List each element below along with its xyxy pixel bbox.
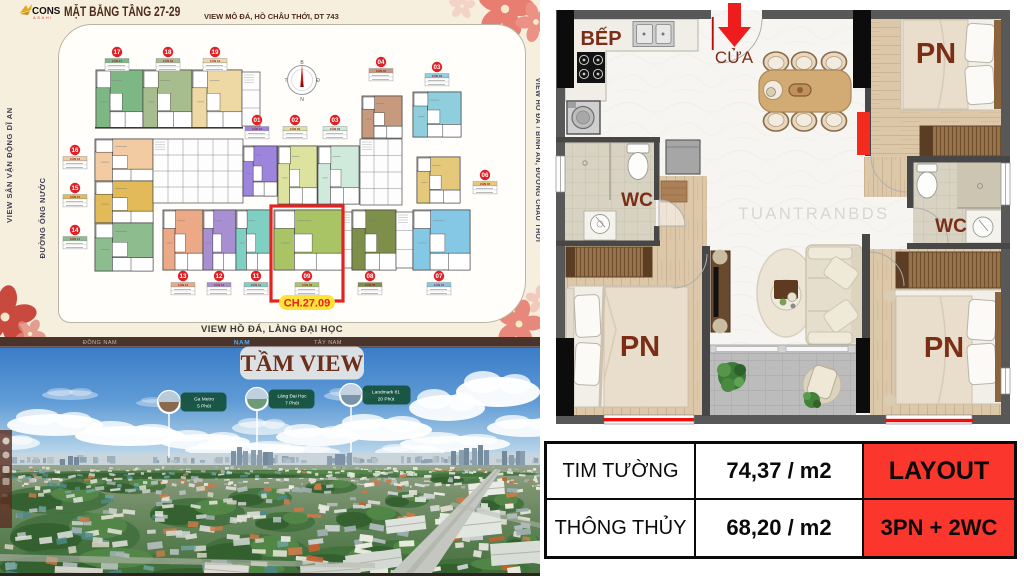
svg-text:PN: PN: [620, 331, 660, 363]
svg-text:WC: WC: [621, 190, 653, 211]
svg-text:02: 02: [292, 117, 299, 124]
svg-text:CĂN 18: CĂN 18: [163, 58, 174, 63]
svg-text:12: 12: [216, 273, 223, 280]
svg-text:20 Phút: 20 Phút: [378, 397, 395, 403]
svg-text:01: 01: [254, 117, 261, 124]
svg-text:08: 08: [367, 273, 374, 280]
svg-text:TUANTRANBDS: TUANTRANBDS: [738, 205, 889, 223]
svg-text:07: 07: [436, 273, 443, 280]
svg-text:CĂN 12: CĂN 12: [214, 282, 225, 287]
svg-text:04: 04: [378, 59, 385, 66]
svg-text:13: 13: [180, 273, 187, 280]
svg-text:18: 18: [165, 49, 172, 56]
svg-text:CĂN 16: CĂN 16: [70, 156, 81, 161]
svg-text:PN: PN: [916, 38, 956, 70]
svg-text:CĂN 13: CĂN 13: [178, 282, 189, 287]
svg-text:CĂN 14: CĂN 14: [70, 236, 81, 241]
svg-text:CĂN 04: CĂN 04: [376, 68, 387, 73]
svg-text:VIEW SÂN VẬN ĐỘNG DĨ AN: VIEW SÂN VẬN ĐỘNG DĨ AN: [5, 107, 14, 223]
svg-text:CĂN 01: CĂN 01: [252, 126, 263, 131]
svg-text:CĂN 07: CĂN 07: [434, 282, 445, 287]
svg-text:CĂN 09: CĂN 09: [302, 282, 313, 287]
svg-text:5 Phút: 5 Phút: [197, 404, 212, 410]
svg-text:CĂN 08: CĂN 08: [365, 282, 376, 287]
svg-text:TẦM VIEW: TẦM VIEW: [241, 350, 364, 376]
svg-text:19: 19: [212, 49, 219, 56]
svg-text:VIEW HỒ ĐÁ, LÀNG ĐẠI HỌC: VIEW HỒ ĐÁ, LÀNG ĐẠI HỌC: [201, 323, 343, 335]
svg-text:14: 14: [72, 227, 79, 234]
svg-text:06: 06: [482, 172, 489, 179]
svg-text:CĂN 11: CĂN 11: [251, 282, 262, 287]
svg-text:17: 17: [114, 49, 121, 56]
svg-text:BẾP: BẾP: [580, 27, 621, 50]
svg-text:NAM: NAM: [234, 340, 250, 347]
svg-text:ĐƯỜNG ỐNG NƯỚC: ĐƯỜNG ỐNG NƯỚC: [37, 177, 47, 258]
svg-text:TÂY NAM: TÂY NAM: [314, 339, 342, 346]
svg-text:CH.27.09: CH.27.09: [284, 298, 330, 310]
svg-text:CĂN 02: CĂN 02: [290, 126, 301, 131]
svg-text:Đ: Đ: [316, 78, 320, 84]
svg-text:ĐÔNG NAM: ĐÔNG NAM: [83, 339, 117, 346]
svg-text:16: 16: [72, 147, 79, 154]
svg-text:CĂN 17: CĂN 17: [112, 58, 123, 63]
svg-text:CỬA: CỬA: [715, 48, 754, 67]
svg-text:CĂN 15: CĂN 15: [70, 194, 81, 199]
svg-text:ASAHI: ASAHI: [33, 15, 53, 20]
svg-text:CĂN 19: CĂN 19: [210, 58, 221, 63]
svg-text:Ga Metro: Ga Metro: [194, 397, 214, 403]
svg-text:T: T: [284, 78, 287, 84]
svg-text:09: 09: [304, 273, 311, 280]
svg-text:Landmark 81: Landmark 81: [372, 390, 400, 396]
svg-text:15: 15: [72, 185, 79, 192]
svg-text:PN: PN: [924, 332, 964, 364]
svg-text:WC: WC: [935, 216, 967, 237]
svg-text:7 Phút: 7 Phút: [285, 401, 300, 407]
svg-text:Làng Đại Học: Làng Đại Học: [277, 394, 307, 400]
svg-text:CĂN 03: CĂN 03: [330, 126, 341, 131]
svg-text:N: N: [300, 97, 304, 103]
svg-text:03: 03: [434, 64, 441, 71]
svg-text:CĂN 03: CĂN 03: [432, 73, 443, 78]
svg-text:CĂN 06: CĂN 06: [480, 181, 491, 186]
svg-text:11: 11: [253, 273, 260, 280]
svg-text:03: 03: [332, 117, 339, 124]
